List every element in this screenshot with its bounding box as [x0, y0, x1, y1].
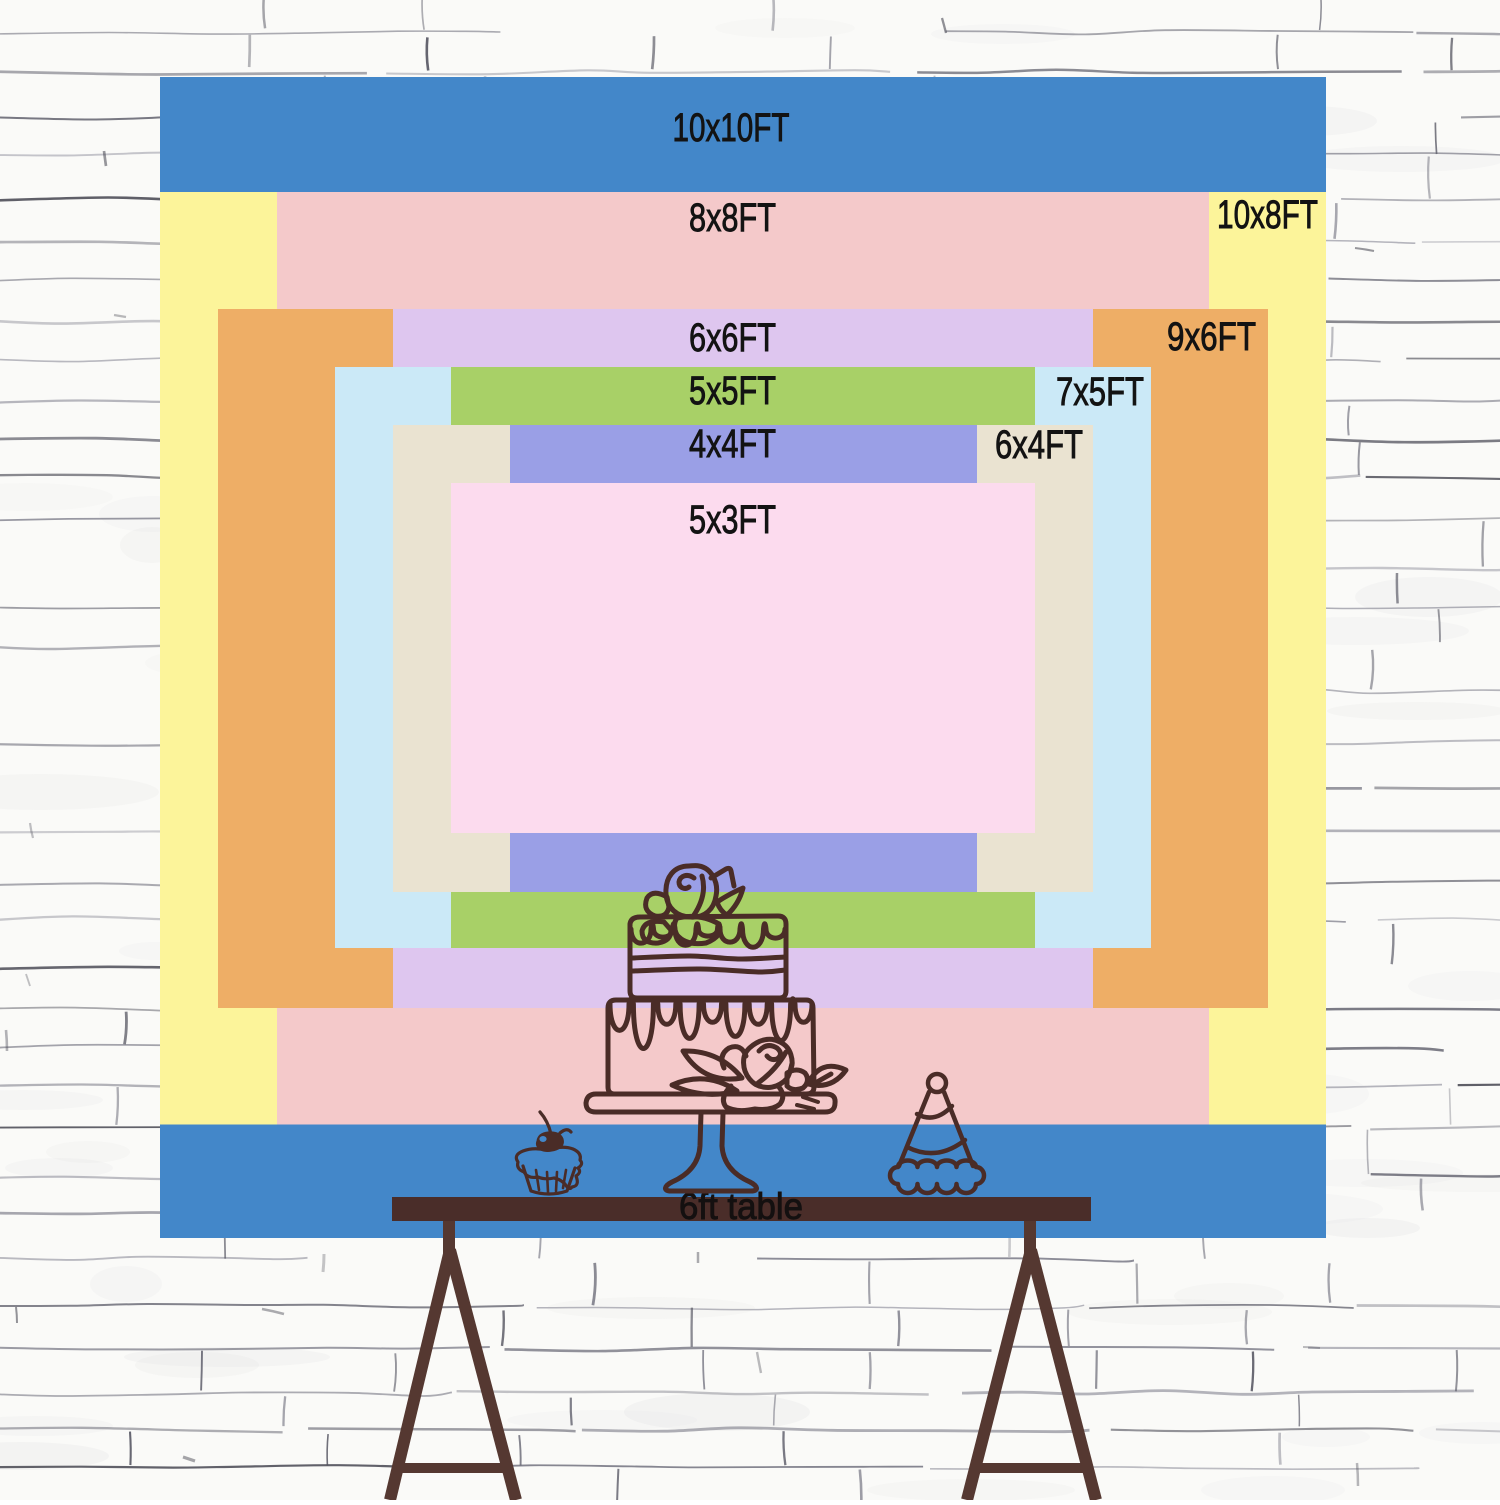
svg-text:7x5FT: 7x5FT — [1056, 370, 1144, 414]
svg-text:10x10FT: 10x10FT — [673, 106, 790, 150]
svg-text:9x6FT: 9x6FT — [1167, 315, 1256, 359]
svg-text:6x6FT: 6x6FT — [689, 316, 776, 360]
svg-text:6x4FT: 6x4FT — [995, 423, 1083, 467]
svg-text:8x8FT: 8x8FT — [689, 196, 776, 240]
svg-text:4x4FT: 4x4FT — [689, 422, 776, 466]
svg-text:5x5FT: 5x5FT — [689, 369, 776, 413]
svg-text:5x3FT: 5x3FT — [689, 498, 776, 542]
svg-text:10x8FT: 10x8FT — [1217, 193, 1318, 237]
